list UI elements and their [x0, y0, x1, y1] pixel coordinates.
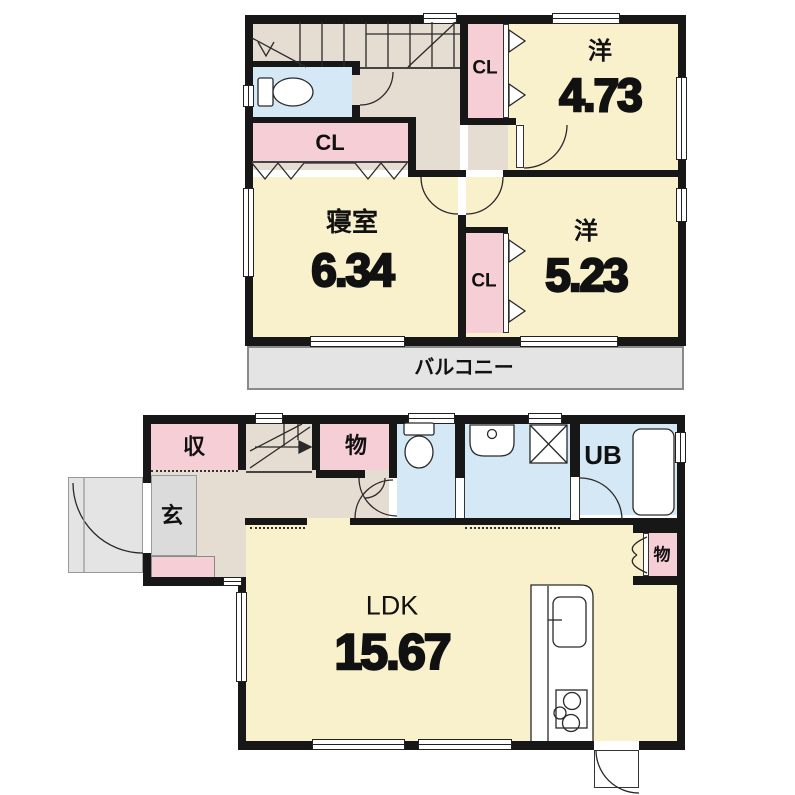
- door-opening: [143, 483, 151, 553]
- exterior-door: [594, 750, 639, 788]
- floorplan: 洋 4.73 寝室 6.34 洋 5.23 CL CL CL バルコニー 収 玄…: [0, 0, 795, 795]
- room-label: 洋: [574, 220, 598, 244]
- closet-label: CL: [472, 59, 497, 78]
- window: [408, 413, 455, 424]
- room-label: 収: [183, 436, 205, 458]
- wall: [316, 470, 365, 478]
- toilet-1f: [397, 424, 455, 518]
- window: [520, 336, 618, 347]
- wall: [352, 105, 360, 117]
- wall: [633, 518, 677, 533]
- wall: [460, 15, 468, 118]
- wall: [312, 415, 320, 470]
- washroom: [465, 424, 570, 518]
- wall: [455, 415, 465, 478]
- wall: [541, 693, 549, 741]
- window: [236, 592, 247, 682]
- door-opening: [389, 478, 397, 518]
- window: [312, 739, 405, 750]
- wall: [245, 518, 307, 525]
- closet-label: CL: [471, 272, 496, 291]
- window: [310, 336, 405, 347]
- room-label: 玄: [161, 505, 183, 527]
- wall: [633, 576, 677, 585]
- window: [243, 85, 254, 107]
- room-label: 物: [345, 435, 367, 457]
- vent-window: [223, 577, 242, 586]
- closet-lower-track: [503, 233, 509, 333]
- door-opening: [455, 478, 465, 518]
- closet-label: CL: [315, 132, 344, 154]
- wall: [416, 170, 458, 177]
- wall: [503, 170, 686, 177]
- wall: [678, 15, 686, 346]
- door-leaf: [516, 125, 524, 168]
- wall: [460, 118, 516, 125]
- room-ldk: [246, 518, 677, 741]
- wall: [458, 170, 466, 177]
- window: [675, 432, 686, 463]
- stair-edge: [246, 471, 312, 473]
- wall: [245, 61, 360, 67]
- room-area: 5.23: [545, 252, 627, 298]
- room-label: UB: [584, 442, 622, 468]
- wall: [238, 415, 246, 470]
- dashed-boundary: [250, 527, 305, 529]
- wall: [458, 215, 466, 345]
- wall: [677, 415, 685, 750]
- wall: [352, 61, 360, 75]
- window: [423, 13, 457, 24]
- window: [676, 77, 687, 160]
- dashed-boundary: [151, 470, 238, 472]
- wall: [570, 415, 580, 477]
- toilet-2f: [252, 67, 352, 117]
- room-area: 4.73: [559, 72, 641, 118]
- room-label: 洋: [588, 40, 612, 64]
- wall: [389, 415, 397, 478]
- dashed-boundary: [465, 527, 560, 529]
- room-area: 15.67: [334, 627, 449, 677]
- closet-track: [252, 161, 408, 163]
- window: [418, 739, 512, 750]
- ldk-storage-track: [643, 533, 649, 576]
- wall: [245, 117, 416, 123]
- wall: [466, 227, 508, 233]
- window: [528, 413, 562, 424]
- stair-edge: [360, 67, 460, 69]
- porch: [68, 477, 143, 573]
- entrance-step: [151, 556, 215, 578]
- balcony-label: バルコニー: [414, 358, 514, 378]
- closet-upper-track: [503, 24, 509, 118]
- room-label: 物: [654, 547, 671, 564]
- room-west-473-lower: [508, 125, 678, 172]
- room-label: LDK: [366, 593, 419, 620]
- room-label: 寝室: [326, 209, 378, 235]
- room-area: 6.34: [311, 247, 393, 293]
- window: [243, 188, 254, 277]
- door-opening: [594, 741, 639, 750]
- window: [552, 13, 620, 24]
- wall: [408, 117, 416, 177]
- window: [676, 188, 687, 222]
- window: [255, 413, 283, 424]
- door-opening: [570, 477, 580, 520]
